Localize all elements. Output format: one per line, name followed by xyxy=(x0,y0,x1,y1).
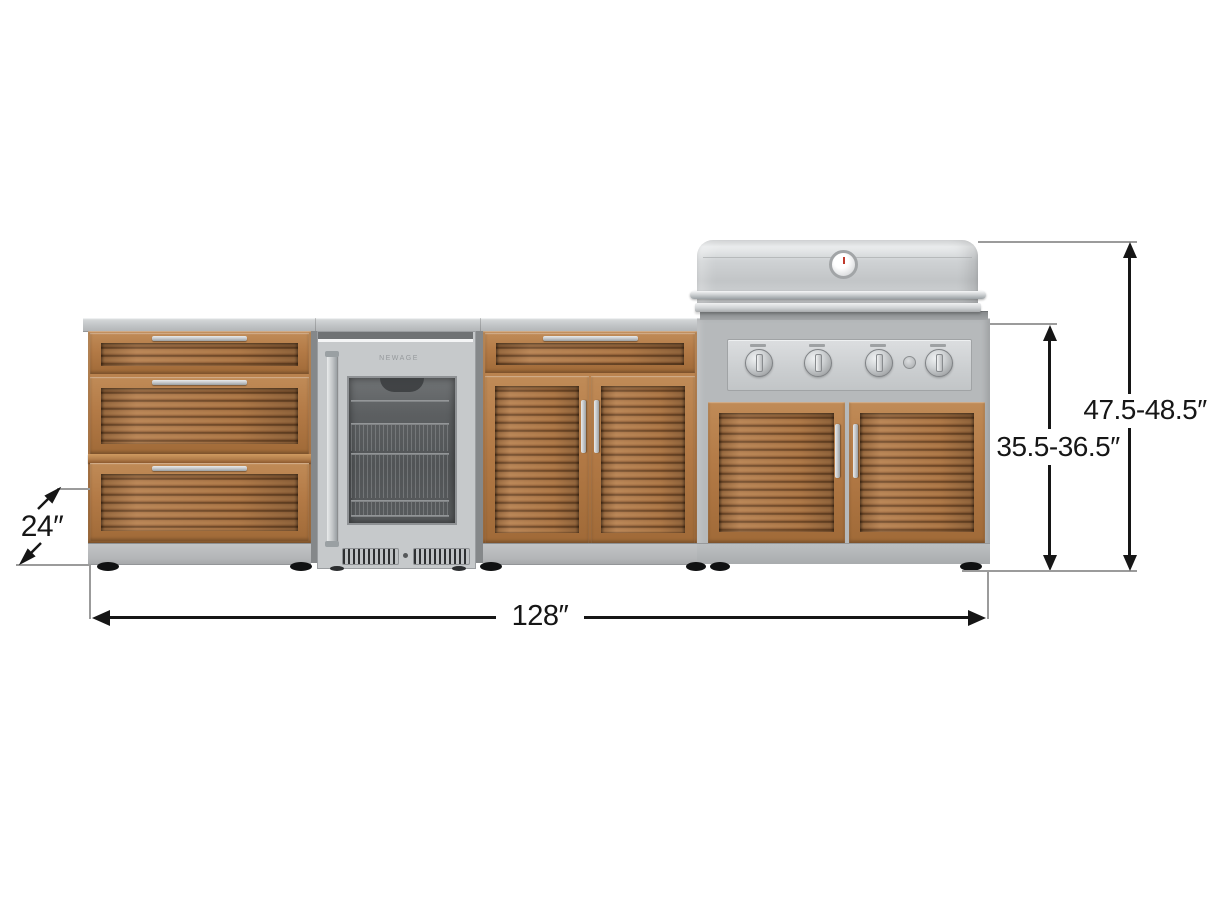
counter-height-line xyxy=(1048,339,1051,429)
extension-line xyxy=(962,570,1137,572)
fridge-handle xyxy=(327,353,337,545)
two-door-cabinet xyxy=(483,331,697,543)
header-slat-panel xyxy=(496,343,684,365)
three-drawer-cabinet xyxy=(88,331,311,543)
door-slat-panel xyxy=(601,386,685,533)
fridge-logo: NEWAGE xyxy=(346,355,452,362)
width-dimension-line xyxy=(584,616,970,619)
knob-label-mark xyxy=(870,344,886,347)
burner-knob xyxy=(865,349,893,377)
door-handle xyxy=(594,400,599,453)
toe-kick xyxy=(88,543,311,565)
knob-grip xyxy=(876,354,883,372)
igniter-button xyxy=(903,356,916,369)
toe-kick xyxy=(697,543,990,564)
fridge-vent xyxy=(413,548,470,565)
cabinet-door-right xyxy=(591,376,695,543)
overall-height-line xyxy=(1128,256,1131,394)
depth-dimension-label: 24″ xyxy=(14,510,70,545)
fridge-handle-mount xyxy=(325,351,339,357)
arrowhead-down xyxy=(1043,555,1057,571)
drawer-handle xyxy=(152,466,247,471)
fridge-bottles xyxy=(351,455,449,498)
door-handle xyxy=(835,424,840,478)
overall-height-line xyxy=(1128,428,1131,557)
fridge-vent xyxy=(342,548,399,565)
fridge-handle-mount xyxy=(325,541,339,547)
grill-door-right xyxy=(849,402,985,543)
drawer-middle xyxy=(90,377,309,454)
counter-height-label: 35.5-36.5″ xyxy=(992,431,1124,463)
door-slat-panel xyxy=(719,413,834,532)
outdoor-kitchen-dimension-diagram: NEWAGE xyxy=(0,0,1214,911)
fridge-vent-screw xyxy=(403,553,408,558)
knob-grip xyxy=(936,354,943,372)
knob-label-mark xyxy=(930,344,946,347)
extension-line xyxy=(978,241,1137,243)
drawer-handle xyxy=(152,336,247,341)
grill-door-left xyxy=(708,402,845,543)
drawer-slat-panel xyxy=(101,474,298,531)
grill-hood-lip xyxy=(695,303,981,312)
cabinet-foot xyxy=(97,562,119,571)
width-dimension-label: 128″ xyxy=(496,600,584,633)
cabinet-door-left xyxy=(485,376,589,543)
cabinet-header-panel xyxy=(485,333,695,373)
fridge-bottles xyxy=(351,425,449,451)
drawer-slat-panel xyxy=(101,388,298,444)
door-slat-panel xyxy=(495,386,579,533)
thermometer-icon xyxy=(829,250,858,279)
overall-height-label: 47.5-48.5″ xyxy=(1078,394,1212,426)
drawer-handle xyxy=(543,336,638,341)
cabinet-foot xyxy=(686,562,706,571)
drawer-top xyxy=(90,333,309,374)
drawer-bottom xyxy=(90,463,309,541)
thermometer-needle xyxy=(843,257,845,264)
cabinet-foot xyxy=(290,562,312,571)
door-slat-panel xyxy=(860,413,974,532)
fridge-body: NEWAGE xyxy=(317,331,476,569)
fridge-glass-door xyxy=(347,376,457,525)
width-dimension-line xyxy=(108,616,496,619)
fridge-top-shadow xyxy=(318,332,473,339)
burner-knob xyxy=(745,349,773,377)
fridge-foot xyxy=(452,566,466,571)
cabinet-foot xyxy=(710,562,730,571)
drawer-handle xyxy=(152,380,247,385)
toe-kick xyxy=(483,543,697,565)
burner-knob xyxy=(925,349,953,377)
countertop-seam xyxy=(480,318,481,331)
drawer-slat-panel xyxy=(101,343,298,366)
fridge-bottles xyxy=(351,502,449,515)
fridge-fan-dome xyxy=(380,378,424,392)
cabinet-foot xyxy=(480,562,502,571)
extension-line xyxy=(987,571,989,619)
extension-line xyxy=(89,564,91,619)
fridge-foot xyxy=(330,566,344,571)
grill-hood-handle xyxy=(690,291,986,299)
fridge-top-highlight xyxy=(318,339,473,342)
fridge-shelf xyxy=(351,400,449,402)
knob-label-mark xyxy=(750,344,766,347)
fridge-shelf xyxy=(351,515,449,517)
counter-height-line xyxy=(1048,465,1051,557)
countertop xyxy=(83,318,702,332)
beverage-fridge: NEWAGE xyxy=(311,331,483,567)
countertop-seam xyxy=(315,318,316,331)
knob-grip xyxy=(756,354,763,372)
grill-grate-gap xyxy=(700,311,988,320)
arrowhead-down xyxy=(1123,555,1137,571)
knob-grip xyxy=(815,354,822,372)
burner-knob xyxy=(804,349,832,377)
knob-label-mark xyxy=(809,344,825,347)
cabinet-ledge xyxy=(88,454,311,463)
door-handle xyxy=(853,424,858,478)
arrowhead-right xyxy=(968,610,986,626)
door-handle xyxy=(581,400,586,453)
